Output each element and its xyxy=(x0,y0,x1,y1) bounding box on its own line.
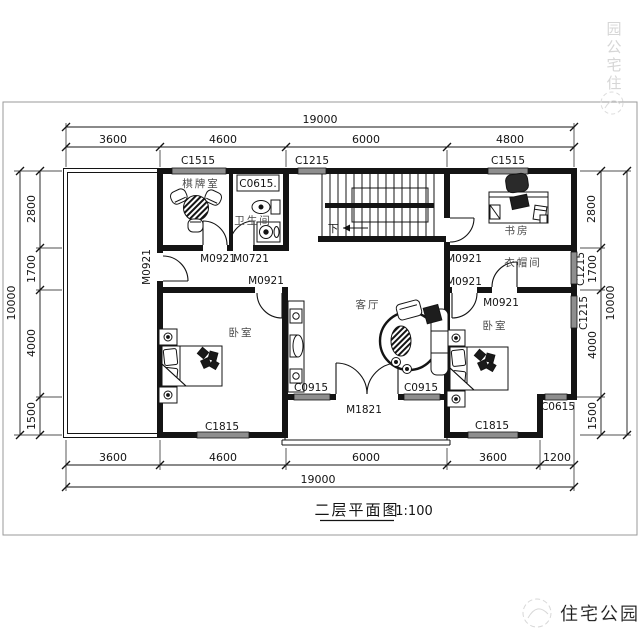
staircase xyxy=(322,174,434,236)
dimension-chain-left xyxy=(14,167,62,439)
door-label-balcony: M1821 xyxy=(346,404,382,416)
dim-left-seg2: 1700 xyxy=(25,255,38,283)
door-label-bed-left: M0921 xyxy=(248,275,284,287)
title-block: 二层平面图 1:100 xyxy=(314,501,432,521)
door-label-bed-right: M0921 xyxy=(446,276,482,288)
window-label-top-chess: C1515 xyxy=(181,155,215,167)
door-label-terrace: M0921 xyxy=(141,249,153,285)
study-furniture xyxy=(489,173,548,223)
dim-top-seg2: 4600 xyxy=(209,133,237,146)
window-label-top-study: C1515 xyxy=(491,155,525,167)
dim-top-seg1: 3600 xyxy=(99,133,127,146)
watermark-char-2: 公 xyxy=(606,38,621,56)
floor-plan-page: 19000 3600 4600 6000 4800 C1515 C1215 C1… xyxy=(0,0,640,640)
door-label-bath: M0721 xyxy=(233,253,269,265)
window-label-living-right: C0915 xyxy=(404,382,438,394)
room-label-chess: 棋牌室 xyxy=(182,177,220,190)
living-room-furniture xyxy=(288,299,448,392)
dim-left-seg4: 1500 xyxy=(25,402,38,430)
watermark-bottom-right: 住宅公园 xyxy=(523,599,640,627)
office-chair xyxy=(505,173,529,194)
dim-top-overall: 19000 xyxy=(303,113,338,126)
door-chess xyxy=(203,221,227,245)
dim-bottom-seg2: 4600 xyxy=(209,451,237,464)
window-label-bath: C0615. xyxy=(239,178,276,190)
dim-bottom-seg5: 1200 xyxy=(543,451,571,464)
coffee-table xyxy=(391,326,411,356)
door-balcony-double xyxy=(336,363,398,394)
room-label-bed-right: 卧室 xyxy=(483,319,508,332)
window-cloak-east xyxy=(571,252,577,284)
dim-left-seg3: 4000 xyxy=(25,329,38,357)
door-study xyxy=(450,218,474,242)
window-label-bed-right: C1815 xyxy=(475,420,509,432)
bedroom-left-furniture xyxy=(159,329,222,403)
stair-handrail xyxy=(325,203,434,208)
dim-bottom-seg4: 3600 xyxy=(479,451,507,464)
door-bed-left xyxy=(257,293,282,318)
dim-top-seg3: 6000 xyxy=(352,133,380,146)
dim-right-seg2: 1700 xyxy=(586,255,599,283)
dim-right-overall: 10000 xyxy=(604,286,617,321)
bedroom-right-furniture xyxy=(447,330,508,407)
terrace-railing xyxy=(64,169,158,438)
room-label-study: 书房 xyxy=(505,224,530,237)
floor-plan-drawing: 19000 3600 4600 6000 4800 C1515 C1215 C1… xyxy=(0,0,640,640)
window-living-right xyxy=(404,394,440,400)
dim-right-seg3: 4000 xyxy=(586,331,599,359)
sofa-cushion xyxy=(423,304,442,323)
window-label-bed-left: C1815 xyxy=(205,421,239,433)
watermark-char-3: 宅 xyxy=(606,56,621,74)
watermark-char-1: 园 xyxy=(606,20,621,38)
window-label-right-bed: C1215 xyxy=(578,296,590,330)
window-bedright-south xyxy=(468,432,518,438)
window-label-living-left: C0915 xyxy=(294,382,328,394)
door-label-cloak: M0921 xyxy=(483,297,519,309)
dim-left-overall: 10000 xyxy=(5,286,18,321)
window-living-left xyxy=(294,394,330,400)
watermark-char-4: 住 xyxy=(606,74,621,92)
window-notch xyxy=(545,394,567,400)
watermark-logo-icon xyxy=(523,599,551,627)
room-label-bath: 卫生间 xyxy=(234,214,272,227)
dim-right-seg4: 1500 xyxy=(586,402,599,430)
watermark-top-right: 园 公 宅 住 xyxy=(601,20,623,114)
dim-bottom-seg1: 3600 xyxy=(99,451,127,464)
door-bed-right xyxy=(452,293,477,318)
stair-down-label: 下 xyxy=(328,223,339,235)
dim-bottom-overall: 19000 xyxy=(301,473,336,486)
dim-bottom-seg3: 6000 xyxy=(352,451,380,464)
window-bedright-east xyxy=(571,296,577,328)
door-terrace xyxy=(163,256,188,281)
window-label-top-stair: C1215 xyxy=(295,155,329,167)
room-label-cloak: 衣帽间 xyxy=(504,256,542,269)
room-label-living: 客厅 xyxy=(356,298,381,311)
door-label-chess: M0921 xyxy=(200,253,236,265)
door-label-study: M0921 xyxy=(446,253,482,265)
dim-left-seg1: 2800 xyxy=(25,195,38,223)
plan-title: 二层平面图 xyxy=(314,501,399,519)
watermark-logo-icon xyxy=(601,92,623,114)
dim-right-seg1: 2800 xyxy=(585,195,598,223)
room-label-bed-left: 卧室 xyxy=(229,326,254,339)
window-label-notch: C0615 xyxy=(541,401,575,413)
window-stair xyxy=(298,168,326,174)
window-chess xyxy=(172,168,226,174)
plan-scale: 1:100 xyxy=(395,504,432,519)
dim-top-seg4: 4800 xyxy=(496,133,524,146)
chess-room-furniture xyxy=(169,187,223,232)
watermark-brand: 住宅公园 xyxy=(560,604,640,625)
